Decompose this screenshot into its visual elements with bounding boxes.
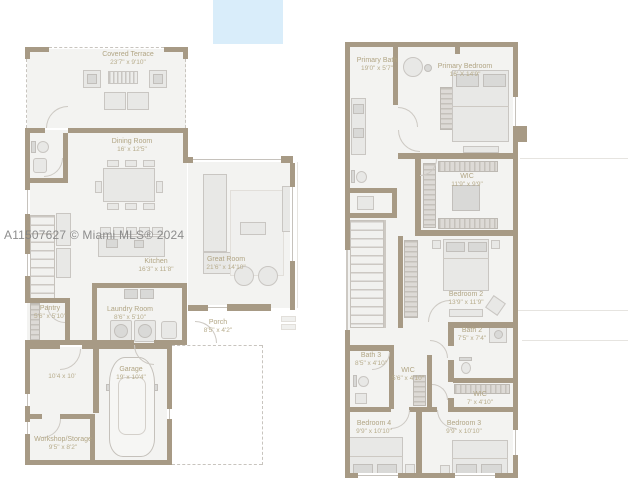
wall: [392, 193, 397, 213]
room-dims: 16' x 12'5": [117, 146, 147, 154]
shower-drain: [494, 330, 503, 339]
wall: [30, 414, 42, 419]
room-dims: 23'7" x 9'10": [110, 59, 146, 67]
staircase: [350, 220, 384, 328]
wall: [345, 188, 397, 193]
wall: [188, 305, 208, 311]
terrace-sofa: [104, 92, 126, 110]
coffee-table: [240, 222, 266, 235]
window: [25, 254, 30, 276]
driveway-dashed-edge: [172, 464, 262, 465]
room-label-wic-small: WIC 5'6" x 4'10": [388, 367, 428, 383]
wall: [345, 42, 518, 47]
room-dims: 8'5" x 4'2": [204, 327, 232, 335]
wall: [513, 455, 518, 478]
room-name: Bedroom 2: [449, 291, 483, 299]
wall: [345, 407, 391, 412]
room-label-great-room: Great Room 21'6" x 14'10": [196, 256, 256, 272]
room-label-bedroom-4: Bedroom 4 9'9" x 10'10": [346, 420, 402, 436]
armchair: [403, 57, 423, 77]
wall: [398, 236, 403, 328]
roof-line: [520, 158, 628, 159]
room-dims: 13'9" x 11'9": [448, 299, 483, 307]
room-name: Laundry Room: [107, 306, 153, 314]
wall: [513, 47, 518, 97]
dining-chair: [143, 160, 155, 167]
driveway-dashed-edge: [262, 345, 263, 465]
room-name: WIC: [401, 367, 415, 375]
room-dims: 21'6" x 14'10": [206, 264, 245, 272]
watermark-text: A11507627 © Miami MLS® 2024: [4, 228, 224, 242]
stairwell-window-line: [346, 250, 348, 330]
room-name: Bedroom 3: [447, 420, 481, 428]
wall: [290, 261, 295, 310]
toilet-icon: [459, 357, 472, 361]
room-dims: 16'3" x 11'8": [138, 266, 173, 274]
armchair: [258, 266, 278, 286]
roof-line: [522, 340, 628, 341]
wall: [25, 47, 30, 59]
dining-chair: [156, 181, 163, 193]
room-dims: 8'6" x 5'10": [114, 314, 146, 322]
terrace-dashed-edge: [26, 59, 27, 128]
toilet-icon: [356, 171, 367, 183]
room-label-kitchen: Kitchen 16'3" x 11'8": [128, 258, 184, 274]
room-name: Porch: [209, 319, 227, 327]
terrace-sofa: [127, 92, 149, 110]
wall: [183, 47, 188, 59]
terrace-dashed-edge: [185, 59, 186, 128]
wall: [25, 298, 70, 303]
dining-chair: [143, 203, 155, 210]
wall: [455, 42, 460, 54]
room-label-primary-bedroom: Primary Bedroom 16' X 14'9": [430, 63, 500, 79]
wall: [92, 288, 97, 340]
porch-step: [281, 324, 296, 330]
blanket-line: [349, 456, 403, 457]
room-label-bedroom-3: Bedroom 3 9'9" x 10'10": [436, 420, 492, 436]
room-name: Covered Terrace: [102, 51, 154, 59]
room-label-pantry: Pantry 5'6" x 5'10": [31, 305, 69, 321]
car-cabin: [118, 377, 146, 435]
window: [25, 394, 30, 406]
floor-plan-canvas: A11507627 © Miami MLS® 2024: [0, 0, 640, 480]
room-dims: 16' X 14'9": [450, 71, 481, 79]
bench: [463, 146, 499, 153]
wall: [25, 343, 60, 349]
wardrobe: [438, 218, 498, 229]
dining-chair: [95, 181, 102, 193]
blanket-line: [452, 106, 509, 107]
driveway-dashed-edge: [172, 345, 262, 346]
wall: [167, 349, 172, 409]
laundry-counter-appliance: [140, 289, 154, 299]
window: [455, 473, 495, 478]
wall: [93, 349, 99, 413]
room-name: Primary Bedroom: [438, 63, 492, 71]
room-name: Bedroom 4: [357, 420, 391, 428]
room-name: Bath 3: [361, 352, 381, 360]
wall: [68, 128, 188, 133]
room-dims: 19' x 10'4": [116, 374, 146, 382]
car-mirror: [154, 384, 158, 391]
pillow: [446, 242, 465, 252]
room-dims: 5'6" x 5'10": [34, 313, 66, 321]
wall: [416, 412, 422, 473]
dining-chair: [125, 203, 137, 210]
wall: [183, 157, 193, 163]
wall: [393, 47, 398, 105]
nightstand: [491, 240, 500, 249]
room-dims: 8'5" x 4'10": [355, 360, 387, 368]
room-label-primary-bath: Primary Bath 19'0" x 5'7": [356, 57, 398, 73]
stair-rail: [384, 220, 386, 328]
wall: [25, 178, 68, 183]
dining-chair: [107, 203, 119, 210]
room-name: WIC: [460, 173, 474, 181]
roof-line: [297, 162, 298, 308]
room-dims: 9'9" x 10'10": [446, 428, 482, 436]
room-name: Bath 2: [462, 327, 482, 335]
room-name: Great Room: [207, 256, 245, 264]
room-name: Garage: [119, 366, 142, 374]
window: [513, 430, 518, 455]
blanket-line: [443, 258, 489, 259]
wall: [415, 230, 513, 236]
sink-icon: [355, 393, 367, 404]
dining-chair: [125, 160, 137, 167]
wall: [290, 163, 295, 187]
wall: [25, 460, 172, 465]
laundry-sink: [161, 321, 177, 339]
dining-chair: [107, 160, 119, 167]
terrace-dashed-edge: [49, 47, 164, 48]
room-dims: 10'4 x 10': [48, 373, 75, 381]
wall: [182, 288, 187, 345]
room-label-bath-2: Bath 2 7'5" x 7'4": [452, 327, 492, 343]
dining-table: [103, 168, 155, 202]
room-label-bath-3: Bath 3 8'5" x 4'10": [350, 352, 392, 368]
window: [290, 187, 295, 261]
room-label-dining-room: Dining Room 16' x 12'5": [100, 138, 164, 154]
wall: [453, 378, 513, 383]
room-label-porch: Porch 8'5" x 4'2": [198, 319, 238, 335]
tall-cabinet: [56, 248, 71, 278]
room-name: Kitchen: [144, 258, 167, 266]
room-label-covered-terrace: Covered Terrace 23'7" x 9'10": [92, 51, 164, 67]
window: [167, 409, 172, 419]
wall: [453, 407, 513, 412]
room-name: Primary Bath: [357, 57, 397, 65]
room-label-bedroom-2: Bedroom 2 13'9" x 11'9": [438, 291, 494, 307]
terrace-side-table-top: [87, 74, 97, 84]
toilet-icon: [353, 375, 357, 387]
wall: [63, 133, 68, 182]
wall: [513, 135, 518, 430]
wall: [25, 276, 30, 300]
roof-line: [516, 310, 628, 311]
room-dims: 7' x 4'10": [467, 399, 493, 407]
room-name: Workshop/Storage: [34, 436, 92, 444]
window: [25, 422, 30, 434]
dryer-drum: [138, 324, 152, 338]
room-dims: 7'5" x 7'4": [458, 335, 486, 343]
nightstand: [432, 240, 441, 249]
sink-icon: [353, 104, 364, 114]
toilet-icon: [461, 362, 471, 374]
room-dims: 19'0" x 5'7": [361, 65, 393, 73]
wall: [345, 213, 397, 218]
window: [358, 473, 398, 478]
wardrobe: [438, 161, 498, 172]
wall: [409, 407, 437, 412]
toilet-icon: [37, 141, 49, 153]
wall: [281, 156, 293, 163]
wall: [25, 349, 30, 394]
linen-shelf: [357, 196, 374, 210]
terrace-bench: [108, 71, 138, 84]
dresser: [449, 309, 483, 317]
window: [208, 305, 227, 310]
room-dims: 9'9" x 10'10": [356, 428, 392, 436]
wall: [227, 304, 271, 311]
room-label-primary-wic: WIC 11'9" x 9'9": [447, 173, 487, 189]
room-name: Pantry: [40, 305, 60, 313]
porch-step: [281, 316, 296, 322]
blue-rectangle: [213, 0, 283, 44]
room-dims: 5'6" x 4'10": [392, 375, 424, 383]
room-label-wic-bedroom3: WIC 7' x 4'10": [460, 391, 500, 407]
window: [193, 157, 281, 162]
wall: [345, 345, 394, 351]
washer-drum: [114, 324, 128, 338]
toilet-icon: [351, 170, 355, 183]
room-label-flex-room: 10'4 x 10': [43, 373, 81, 381]
room-dims: 9'5" x 8'2": [49, 444, 77, 452]
car-mirror: [106, 384, 110, 391]
room-dims: 11'9" x 9'9": [451, 181, 483, 189]
room-label-garage: Garage 19' x 10'4": [107, 366, 155, 382]
blanket-line: [452, 458, 508, 459]
toilet-icon: [31, 141, 36, 153]
wall: [345, 218, 350, 250]
wall: [92, 283, 187, 288]
room-label-laundry-room: Laundry Room 8'6" x 5'10": [104, 306, 156, 322]
pillow: [468, 242, 487, 252]
room-name: WIC: [473, 391, 487, 399]
wall: [167, 419, 172, 465]
closet: [404, 240, 418, 318]
toilet-icon: [358, 376, 369, 387]
sink-icon: [353, 128, 364, 138]
window: [25, 190, 30, 214]
laundry-counter-appliance: [124, 289, 138, 299]
room-name: Dining Room: [112, 138, 152, 146]
room-label-workshop-storage: Workshop/Storage 9'5" x 8'2": [34, 436, 92, 452]
terrace-side-table-top: [153, 74, 163, 84]
